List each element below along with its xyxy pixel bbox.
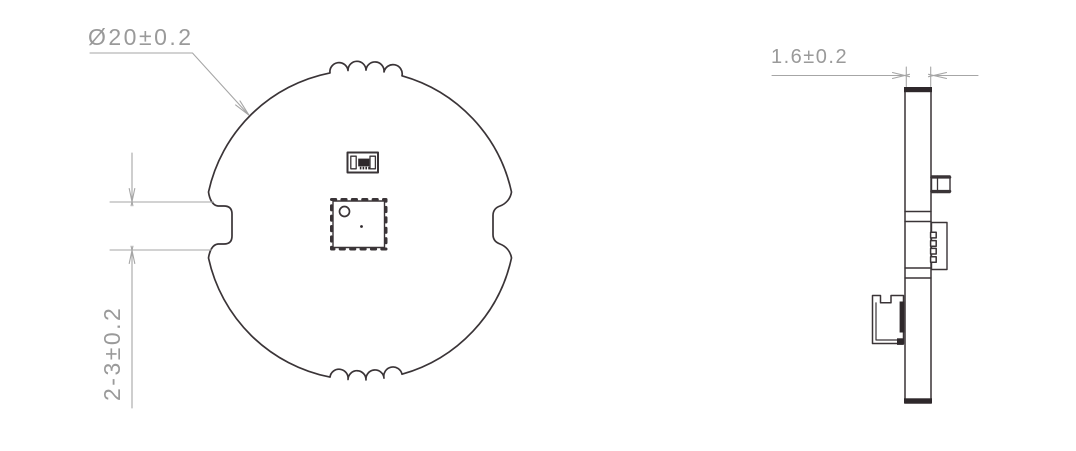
smt-connector-contact-block bbox=[358, 159, 369, 167]
dimension-group bbox=[90, 53, 978, 408]
smt-connector-pin bbox=[360, 167, 362, 170]
side-ic-pin bbox=[931, 257, 937, 263]
technical-drawing-canvas bbox=[0, 0, 1076, 451]
ic-center-dot bbox=[360, 225, 363, 228]
smt-connector-pad-right bbox=[370, 156, 375, 169]
side-board-top-cap bbox=[904, 87, 932, 92]
diameter-dimension-label: Ø20±0.2 bbox=[88, 26, 194, 49]
smt-connector-pad-left bbox=[351, 156, 356, 169]
thickness-dimension-label: 1.6±0.2 bbox=[771, 47, 848, 67]
smt-connector-pin bbox=[365, 167, 367, 170]
smt-connector-pin bbox=[363, 167, 365, 170]
side-ic-pin bbox=[931, 241, 937, 247]
side-flex-connector-housing bbox=[873, 296, 904, 344]
part-outline-group bbox=[209, 61, 951, 403]
side-ic-pin bbox=[931, 232, 937, 238]
side-ic-pin bbox=[931, 248, 937, 254]
tab-width-dimension-label: 2-3±0.2 bbox=[101, 306, 124, 401]
technical-drawing-page: Ø20±0.2 1.6±0.2 2-3±0.2 bbox=[0, 0, 1076, 451]
dim-diameter-leader bbox=[90, 53, 247, 113]
side-flex-contact-bar bbox=[900, 302, 905, 333]
side-flex-foot-block bbox=[897, 338, 904, 345]
side-board-outline bbox=[905, 88, 931, 403]
side-board-bottom-cap bbox=[904, 398, 932, 403]
side-flex-connector-inner bbox=[876, 303, 900, 340]
smt-connector-pin bbox=[368, 167, 370, 170]
